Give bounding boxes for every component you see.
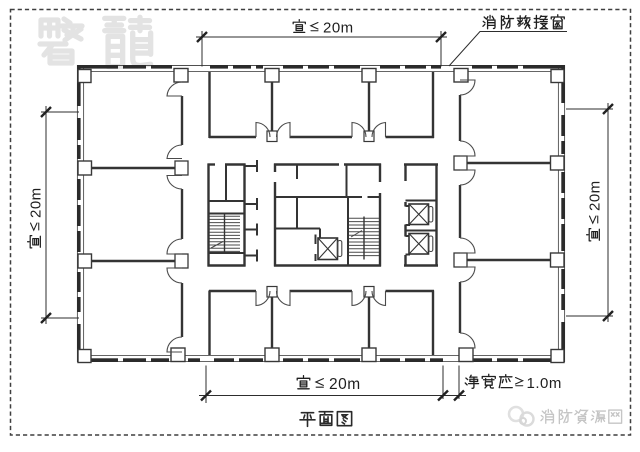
- svg-text:20m: 20m: [28, 187, 45, 218]
- svg-text:1.0m: 1.0m: [527, 375, 562, 392]
- svg-text:20m: 20m: [329, 376, 361, 393]
- svg-text:20m: 20m: [587, 180, 604, 211]
- svg-text:20m: 20m: [323, 20, 354, 37]
